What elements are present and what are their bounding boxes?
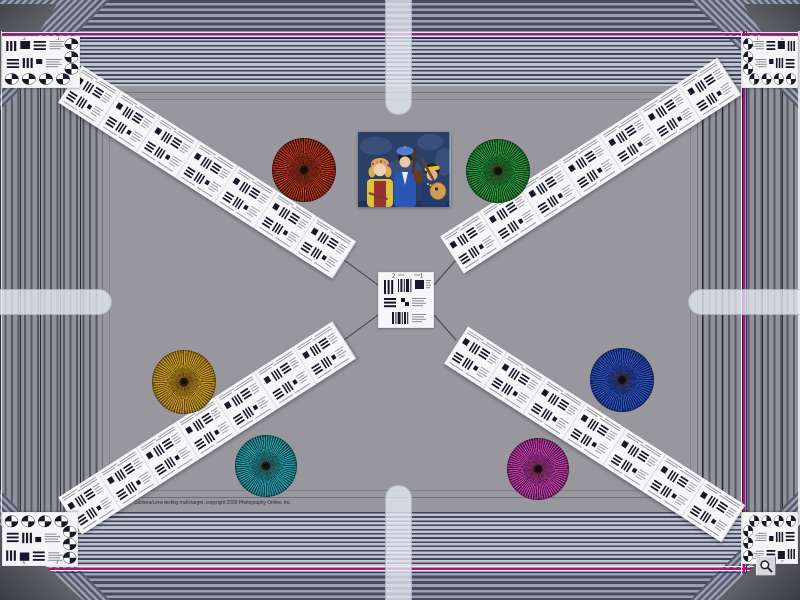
corner-card-top-left xyxy=(2,36,80,88)
star-center xyxy=(590,348,654,412)
teal-siemens-star xyxy=(235,435,297,497)
gold-siemens-star xyxy=(152,350,216,414)
star-center xyxy=(466,139,530,203)
chart-caption: Camera/Lens testing multi-target, copyri… xyxy=(134,500,291,506)
center-resolution-card xyxy=(378,272,434,328)
magenta-siemens-star xyxy=(507,438,569,500)
blue-siemens-star xyxy=(590,348,654,412)
star-center xyxy=(152,350,216,414)
corner-card-bottom-left xyxy=(2,512,78,566)
test-chart-image: Camera/Lens testing multi-target, copyri… xyxy=(0,0,800,600)
zoom-button[interactable] xyxy=(756,556,776,576)
green-siemens-star xyxy=(466,139,530,203)
red-siemens-star xyxy=(272,138,336,202)
star-center xyxy=(272,138,336,202)
musicians-photo xyxy=(358,132,451,207)
star-center xyxy=(507,438,569,500)
star-center xyxy=(235,435,297,497)
magnifier-icon xyxy=(759,559,773,573)
corner-card-top-right xyxy=(742,36,798,88)
